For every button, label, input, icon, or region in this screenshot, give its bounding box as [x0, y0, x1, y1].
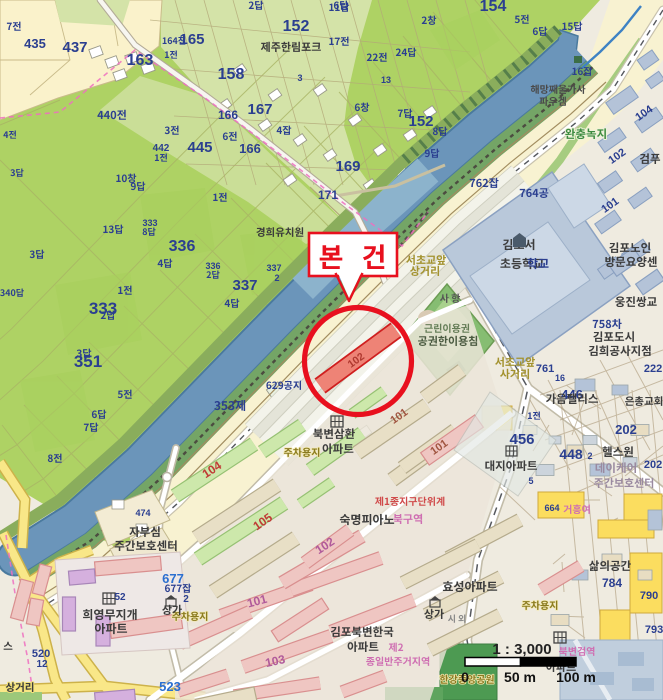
svg-text:202: 202 — [644, 459, 662, 471]
svg-text:1 : 3,000: 1 : 3,000 — [492, 641, 551, 658]
svg-text:154: 154 — [480, 0, 507, 15]
svg-text:435: 435 — [24, 36, 46, 51]
svg-text:448: 448 — [559, 446, 583, 462]
svg-text:13: 13 — [381, 75, 391, 85]
svg-text:202: 202 — [615, 422, 637, 437]
svg-text:100 m: 100 m — [556, 669, 596, 685]
svg-text:790: 790 — [640, 590, 658, 602]
svg-text:677: 677 — [162, 571, 184, 586]
svg-text:333: 333 — [142, 218, 157, 228]
svg-text:351: 351 — [74, 352, 102, 371]
svg-text:336: 336 — [205, 261, 220, 271]
svg-text:337: 337 — [266, 263, 281, 273]
svg-text:165: 165 — [179, 31, 204, 48]
svg-text:222: 222 — [644, 363, 662, 375]
svg-text:158: 158 — [218, 66, 245, 83]
svg-text:437: 437 — [62, 39, 87, 56]
svg-text:3: 3 — [297, 73, 302, 83]
svg-text:474: 474 — [135, 508, 150, 518]
svg-text:784: 784 — [602, 576, 622, 590]
svg-text:169: 169 — [335, 158, 360, 175]
svg-text:336: 336 — [169, 238, 196, 255]
svg-text:2: 2 — [183, 594, 189, 605]
svg-text:761: 761 — [536, 363, 554, 375]
svg-text:166: 166 — [218, 108, 238, 122]
svg-text:166: 166 — [239, 141, 261, 156]
svg-text:793: 793 — [645, 624, 663, 636]
svg-text:152: 152 — [283, 18, 310, 35]
svg-text:5: 5 — [528, 476, 533, 486]
svg-text:442: 442 — [153, 143, 170, 154]
svg-text:167: 167 — [247, 101, 272, 118]
svg-text:0: 0 — [461, 669, 469, 685]
svg-text:152: 152 — [408, 113, 433, 130]
svg-text:523: 523 — [159, 679, 181, 694]
svg-text:664: 664 — [544, 503, 559, 513]
svg-text:52: 52 — [114, 592, 126, 603]
svg-text:50 m: 50 m — [504, 669, 536, 685]
svg-text:171: 171 — [318, 188, 338, 202]
svg-text:12: 12 — [36, 659, 48, 670]
svg-text:445: 445 — [187, 139, 212, 156]
svg-text:2: 2 — [274, 273, 279, 283]
svg-text:337: 337 — [232, 277, 257, 294]
svg-text:163: 163 — [127, 52, 154, 69]
svg-text:16: 16 — [555, 373, 565, 383]
svg-text:2: 2 — [587, 451, 592, 461]
